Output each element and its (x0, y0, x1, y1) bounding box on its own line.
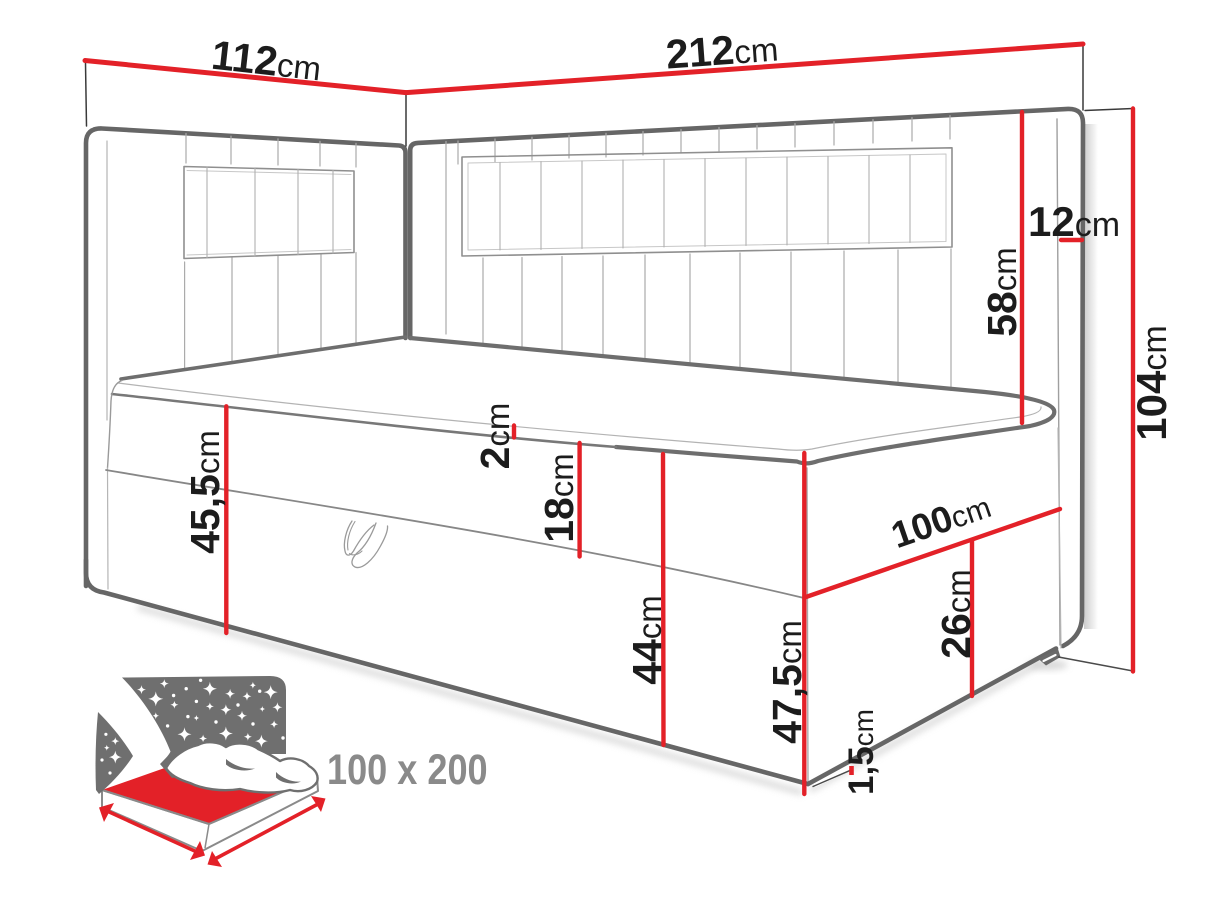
svg-text:18cm: 18cm (536, 453, 582, 543)
svg-text:44cm: 44cm (624, 595, 670, 685)
svg-text:45,5cm: 45,5cm (182, 430, 228, 554)
svg-text:12cm: 12cm (1028, 198, 1120, 245)
svg-text:2cm: 2cm (472, 403, 518, 470)
svg-text:26cm: 26cm (933, 569, 979, 659)
svg-text:104cm: 104cm (1128, 325, 1175, 440)
svg-text:58cm: 58cm (979, 247, 1025, 337)
svg-text:100 x 200: 100 x 200 (327, 746, 488, 794)
svg-text:1,5cm: 1,5cm (842, 709, 881, 795)
svg-text:47,5cm: 47,5cm (764, 620, 810, 744)
